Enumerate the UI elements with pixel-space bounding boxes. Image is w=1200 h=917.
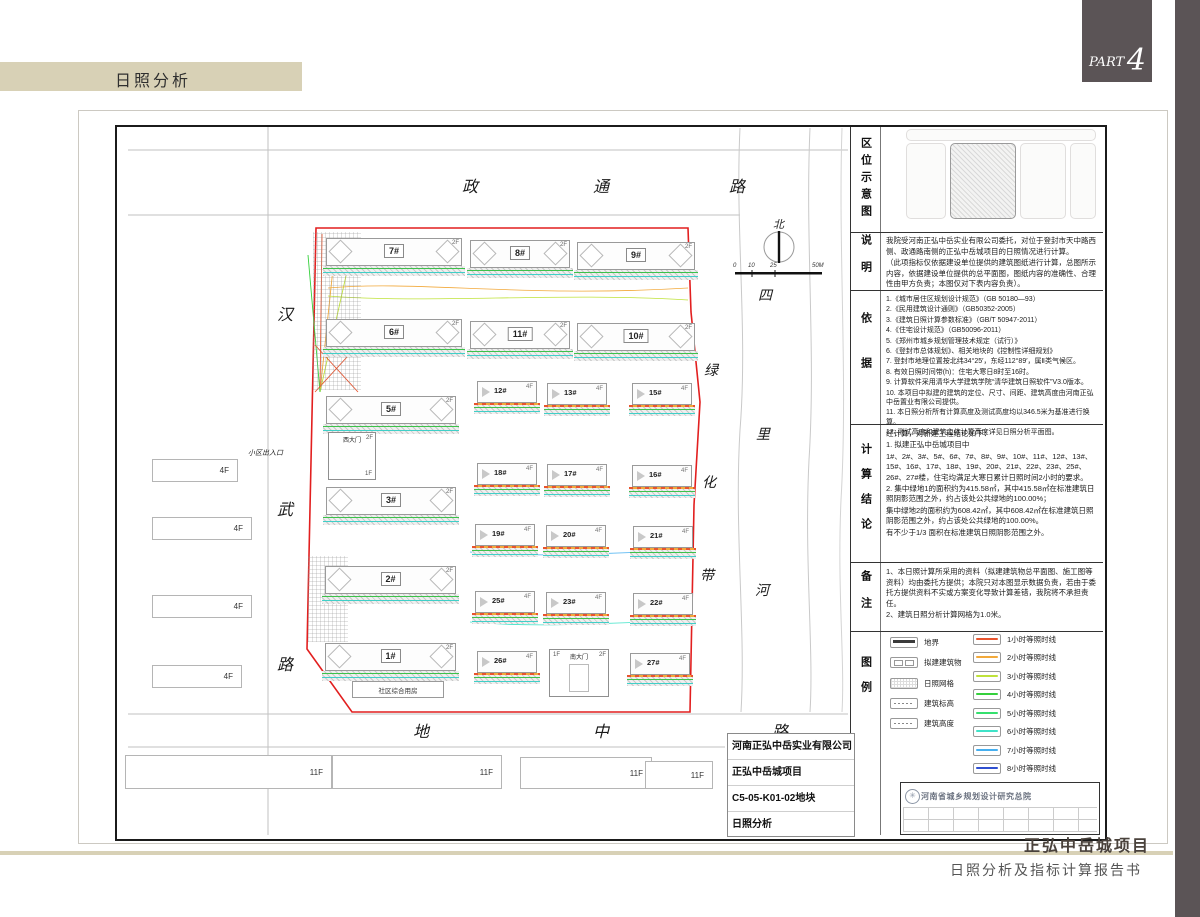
part-number: 4	[1127, 43, 1146, 78]
isochrone-band	[544, 486, 610, 497]
isochrone-band	[574, 351, 698, 361]
building-11: 11#2F	[470, 321, 570, 349]
isochrone-band	[467, 349, 573, 359]
building-19: 19#4F	[475, 524, 535, 546]
building-label: 13#	[564, 388, 577, 397]
isochrone-2h-swatch	[973, 652, 1001, 663]
building-6: 6#2F	[326, 319, 462, 347]
building-18: 18#4F	[477, 463, 537, 485]
building-label: 2#	[380, 572, 400, 586]
triangle-icon	[552, 389, 560, 399]
triangle-icon	[551, 598, 559, 608]
roof-hip-icon	[472, 241, 496, 265]
boundary-line-swatch	[890, 637, 918, 648]
building-16: 16#4F	[632, 465, 692, 487]
isochrone-band	[472, 546, 538, 557]
floor-label: 2F	[599, 652, 606, 658]
legend-item: 2小时等照时线	[973, 652, 1100, 663]
existing-building-11f: 11F	[645, 761, 713, 789]
building-label: 1#	[380, 649, 400, 663]
triangle-icon	[638, 599, 646, 609]
floor-label: 4F	[526, 466, 533, 472]
building-17: 17#4F	[547, 464, 607, 486]
triangle-icon	[635, 659, 643, 669]
location-map	[898, 133, 1098, 227]
floor-label: 2F	[366, 435, 373, 441]
existing-building-11f: 11F	[520, 757, 652, 789]
building-label: 26#	[494, 656, 507, 665]
statement-p1: 我院受河南正弘中岳实业有限公司委托，对位于登封市天中路西侧、政通路南侧的正弘中岳…	[886, 236, 1098, 257]
isochrone-band	[322, 594, 459, 604]
annex-floor-label: 2F	[446, 568, 453, 574]
annex-floor-label: 2F	[446, 645, 453, 651]
map-block	[906, 129, 1096, 141]
isochrone-band	[472, 613, 538, 624]
building-label: 25#	[492, 596, 505, 605]
building-1: 1#2F	[325, 643, 456, 671]
roof-hip-icon	[328, 320, 352, 344]
institute-name: 河南省城乡规划设计研究总院	[921, 791, 1032, 802]
section-label-basis: 依据	[851, 290, 880, 424]
right-edge-bar	[1175, 0, 1200, 917]
isochrone-band	[544, 405, 610, 416]
panel-divider	[850, 232, 1103, 233]
gate-label: 西大门	[343, 435, 361, 444]
page-title-banner: 日照分析	[0, 62, 302, 91]
roof-hip-icon	[327, 644, 351, 668]
triangle-icon	[552, 470, 560, 480]
gate-label: 南大门	[570, 652, 588, 661]
roof-hip-icon	[579, 243, 603, 267]
building-label: 18#	[494, 468, 507, 477]
annex-floor-label: 2F	[452, 321, 459, 327]
floor-label: 1F	[553, 652, 560, 658]
building-label: 3#	[381, 493, 401, 507]
footer-accent-line	[0, 851, 1173, 855]
legend-item: 8小时等照时线	[973, 763, 1100, 774]
building-26: 26#4F	[477, 651, 537, 673]
scale-label: 0	[733, 263, 736, 269]
legend-item: 7小时等照时线	[973, 745, 1100, 756]
river-char: 河	[755, 580, 769, 600]
entrance-label: 小区出入口	[248, 448, 283, 458]
isochrone-band	[630, 615, 696, 626]
building-label: 8#	[510, 246, 530, 260]
annex-floor-label: 2F	[452, 240, 459, 246]
report-page: 日照分析 PART 4	[0, 0, 1200, 917]
existing-building-4f: 4F	[152, 595, 252, 618]
isochrone-band	[323, 347, 465, 357]
annex-floor-label: 2F	[560, 242, 567, 248]
existing-building-4f: 4F	[152, 517, 252, 540]
existing-building-4f: 4F	[152, 665, 242, 688]
legend-item: 1小时等照时线	[973, 634, 1100, 645]
section-label-notes: 说明	[851, 232, 880, 290]
road-zhengtong-char: 通	[593, 173, 609, 197]
road-hanwu-char: 武	[277, 496, 293, 520]
triangle-icon	[480, 530, 488, 540]
floor-label: 4F	[682, 529, 689, 535]
roof-hip-icon	[328, 488, 352, 512]
north-label: 北	[773, 216, 784, 232]
isochrone-band	[322, 671, 459, 681]
road-zhengtong-char: 路	[729, 173, 745, 197]
scale-label: 10	[748, 263, 755, 269]
institute-logo-icon: ✳	[905, 789, 920, 804]
scale-label: 50M	[812, 263, 824, 269]
greenbelt-char: 绿	[704, 360, 718, 380]
road-hanwu-char: 路	[277, 651, 293, 675]
building-label: 5#	[381, 402, 401, 416]
isochrone-band	[627, 675, 693, 686]
isochrone-1h-swatch	[973, 634, 1001, 645]
legend-item: 6小时等照时线	[973, 726, 1100, 737]
triangle-icon	[637, 471, 645, 481]
building-label: 11#	[508, 327, 533, 341]
page-title: 日照分析	[115, 67, 191, 91]
building-label: 6#	[384, 325, 404, 339]
isochrone-band	[630, 548, 696, 559]
building-7: 7#2F	[326, 238, 462, 266]
part-badge: PART 4	[1082, 0, 1152, 82]
section-label-conclusion: 计算结论	[851, 424, 880, 562]
legend-item: 5小时等照时线	[973, 708, 1100, 719]
triangle-icon	[480, 597, 488, 607]
sunshine-grid-swatch	[890, 678, 918, 689]
isochrone-5h-swatch	[973, 708, 1001, 719]
conclusion-text: 经计算，对新建工程结论如下： 1. 拟建正弘中岳城项目中 1#、2#、3#、5#…	[886, 429, 1098, 539]
floor-label: 4F	[679, 656, 686, 662]
isochrone-band	[467, 268, 573, 278]
gate-inner-box	[569, 664, 589, 692]
title-block-drawing: 日照分析	[728, 812, 854, 837]
roof-hip-icon	[328, 239, 352, 263]
map-block	[1070, 143, 1096, 219]
stamp-grid	[903, 807, 1097, 832]
footer-project-title: 正弘中岳城项目	[1024, 832, 1150, 856]
existing-building-11f: 11F	[125, 755, 332, 789]
panel-divider	[850, 562, 1103, 563]
section-label-location: 区位示意图	[851, 127, 880, 232]
road-zhengtong-char: 政	[462, 173, 478, 197]
height-swatch	[890, 718, 918, 729]
building-20: 20#4F	[546, 525, 606, 547]
panel-label-divider	[880, 127, 881, 835]
statement-p2: （此项指标仅依据建设单位提供的建筑图纸进行计算，总图所示内容，依据建设单位提供的…	[886, 258, 1098, 290]
isochrone-band	[574, 270, 698, 280]
south-gate: 1F南大门2F	[549, 649, 609, 697]
panel-divider	[850, 631, 1103, 632]
part-word: PART	[1089, 55, 1124, 70]
title-block-company: 河南正弘中岳实业有限公司	[728, 734, 854, 760]
triangle-icon	[482, 469, 490, 479]
floor-label: 4F	[681, 386, 688, 392]
isochrone-band	[474, 403, 540, 414]
building-15: 15#4F	[632, 383, 692, 405]
building-label: 9#	[626, 248, 646, 262]
institute-stamp: ✳ 河南省城乡规划设计研究总院	[900, 782, 1100, 835]
building-5: 5#2F	[326, 396, 456, 424]
isochrone-band	[323, 515, 459, 525]
building-label: 10#	[623, 329, 648, 343]
map-block	[1020, 143, 1066, 219]
building-label: 7#	[384, 244, 404, 258]
road-dizhong-char: 中	[593, 718, 609, 742]
proposed-building-swatch	[890, 657, 918, 668]
footer-report-title: 日照分析及指标计算报告书	[950, 860, 1142, 880]
site-parcel-hatched	[950, 143, 1016, 219]
section-label-remarks: 备注	[851, 562, 880, 631]
floor-label: 4F	[596, 386, 603, 392]
isochrone-band	[629, 405, 695, 416]
isochrone-7h-swatch	[973, 745, 1001, 756]
isochrone-band	[474, 673, 540, 684]
building-label: 12#	[494, 386, 507, 395]
remarks-text: 1、本日照计算所采用的资料（拟建建筑物总平面图、施工图等资料）均由委托方提供；本…	[886, 567, 1098, 622]
floor-label: 4F	[526, 384, 533, 390]
building-label: 20#	[563, 530, 576, 539]
annex-floor-label: 2F	[446, 398, 453, 404]
community-label: 社区综合用房	[379, 685, 418, 695]
triangle-icon	[551, 531, 559, 541]
floor-label: 4F	[526, 654, 533, 660]
building-3: 3#2F	[326, 487, 456, 515]
floor-label: 4F	[595, 595, 602, 601]
building-27: 27#4F	[630, 653, 690, 675]
statement-text: 我院受河南正弘中岳实业有限公司委托，对位于登封市天中路西侧、政通路南侧的正弘中岳…	[886, 236, 1098, 291]
isochrone-band	[543, 614, 609, 625]
drawing-title-block: 河南正弘中岳实业有限公司 正弘中岳城项目 C5-05-K01-02地块 日照分析	[727, 733, 855, 837]
floor-label: 4F	[524, 527, 531, 533]
annex-floor-label: 2F	[446, 489, 453, 495]
building-2: 2#2F	[325, 566, 456, 594]
elevation-swatch	[890, 698, 918, 709]
roof-hip-icon	[579, 324, 603, 348]
section-label-legend: 图例	[851, 631, 880, 731]
floor-label: 1F	[365, 471, 372, 477]
title-block-plot: C5-05-K01-02地块	[728, 786, 854, 812]
river-char: 四	[758, 285, 772, 305]
building-23: 23#4F	[546, 592, 606, 614]
floor-label: 4F	[681, 468, 688, 474]
annex-floor-label: 2F	[560, 323, 567, 329]
floor-label: 4F	[595, 528, 602, 534]
building-label: 19#	[492, 529, 505, 538]
annex-floor-label: 2F	[685, 325, 692, 331]
building-10: 10#2F	[577, 323, 695, 351]
map-block	[906, 143, 946, 219]
building-label: 22#	[650, 598, 663, 607]
building-label: 23#	[563, 597, 576, 606]
road-hanwu-char: 汉	[277, 301, 293, 325]
road-dizhong-char: 地	[413, 718, 429, 742]
isochrone-4h-swatch	[973, 689, 1001, 700]
roof-hip-icon	[327, 567, 351, 591]
building-label: 17#	[564, 469, 577, 478]
building-label: 21#	[650, 531, 663, 540]
isochrone-3h-swatch	[973, 671, 1001, 682]
building-label: 15#	[649, 388, 662, 397]
greenbelt-char: 化	[702, 472, 716, 492]
isochrone-band	[323, 266, 465, 276]
floor-label: 4F	[596, 467, 603, 473]
isochrone-8h-swatch	[973, 763, 1001, 774]
annex-floor-label: 2F	[685, 244, 692, 250]
roof-hip-icon	[328, 397, 352, 421]
floor-label: 4F	[682, 596, 689, 602]
legend-item: 3小时等照时线	[973, 671, 1100, 682]
river-char: 里	[756, 424, 770, 444]
triangle-icon	[482, 387, 490, 397]
triangle-icon	[482, 657, 490, 667]
existing-building-11f: 11F	[332, 755, 502, 789]
triangle-icon	[637, 389, 645, 399]
building-25: 25#4F	[475, 591, 535, 613]
floor-label: 4F	[524, 594, 531, 600]
building-13: 13#4F	[547, 383, 607, 405]
legend-right-column: 1小时等照时线 2小时等照时线 3小时等照时线 4小时等照时线 5小时等照时线 …	[973, 634, 1100, 774]
roof-hip-icon	[472, 322, 496, 346]
west-gate: 西大门2F1F	[328, 432, 376, 480]
building-label: 16#	[649, 470, 662, 479]
building-21: 21#4F	[633, 526, 693, 548]
isochrone-band	[629, 487, 695, 498]
existing-building-4f: 4F	[152, 459, 238, 482]
isochrone-6h-swatch	[973, 726, 1001, 737]
isochrone-band	[543, 547, 609, 558]
scale-label: 25	[770, 263, 777, 269]
building-22: 22#4F	[633, 593, 693, 615]
legend-item: 4小时等照时线	[973, 689, 1100, 700]
greenbelt-char: 带	[700, 565, 714, 585]
community-building: 社区综合用房	[352, 681, 444, 698]
title-block-project: 正弘中岳城项目	[728, 760, 854, 786]
building-8: 8#2F	[470, 240, 570, 268]
isochrone-band	[474, 485, 540, 496]
basis-list: 1.《城市居住区规划设计规范》（GB 50180—93） 2.《民用建筑设计通则…	[886, 295, 1100, 439]
building-12: 12#4F	[477, 381, 537, 403]
building-label: 27#	[647, 658, 660, 667]
triangle-icon	[638, 532, 646, 542]
building-9: 9#2F	[577, 242, 695, 270]
